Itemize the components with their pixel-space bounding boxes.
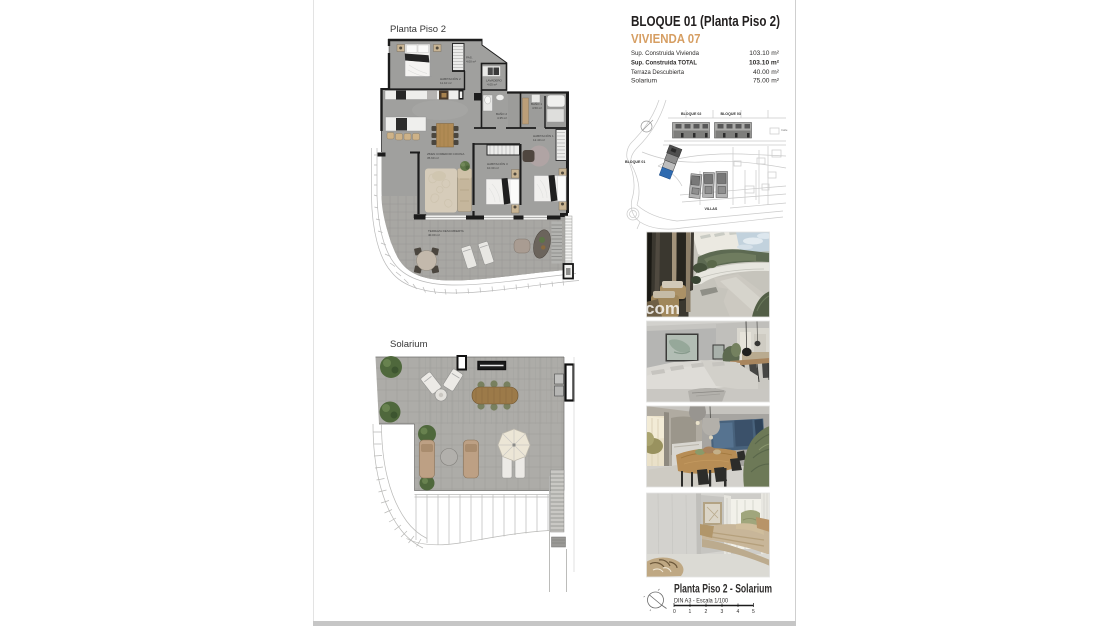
svg-text:10.30 m²: 10.30 m² <box>487 166 499 170</box>
svg-text:35.60 m²: 35.60 m² <box>427 156 439 160</box>
svg-text:40.00 m²: 40.00 m² <box>428 233 440 237</box>
svg-text:103.10 m²: 103.10 m² <box>749 60 780 67</box>
svg-text:5: 5 <box>752 609 755 615</box>
svg-text:DIN A3 - Escala 1/100: DIN A3 - Escala 1/100 <box>674 598 728 605</box>
svg-text:12.40 m²: 12.40 m² <box>533 138 545 142</box>
svg-text:4: 4 <box>737 609 740 615</box>
svg-text:Planta Piso 2 - Solarium: Planta Piso 2 - Solarium <box>674 584 772 596</box>
svg-text:VILLAS: VILLAS <box>705 207 718 211</box>
svg-text:BLOQUE 03: BLOQUE 03 <box>721 112 741 116</box>
svg-text:4.00 m²: 4.00 m² <box>466 60 476 64</box>
svg-text:com: com <box>645 299 680 318</box>
svg-text:4.50 m²: 4.50 m² <box>532 106 542 110</box>
svg-text:40.00 m²: 40.00 m² <box>753 69 780 76</box>
svg-text:Solarium: Solarium <box>390 339 428 350</box>
svg-text:BLOQUE 02: BLOQUE 02 <box>681 112 701 116</box>
svg-text:0: 0 <box>673 609 676 615</box>
svg-text:Solarium: Solarium <box>631 78 658 85</box>
svg-text:Sup. Construida Vivienda: Sup. Construida Vivienda <box>631 50 699 57</box>
svg-text:BLOQUE 01 (Planta Piso 2): BLOQUE 01 (Planta Piso 2) <box>631 14 780 30</box>
svg-text:Sup. Construida TOTAL: Sup. Construida TOTAL <box>631 60 697 67</box>
svg-text:103.10 m²: 103.10 m² <box>749 50 779 57</box>
svg-text:3: 3 <box>721 609 724 615</box>
svg-text:11.10 m²: 11.10 m² <box>440 81 452 85</box>
svg-text:75.00 m²: 75.00 m² <box>753 78 780 85</box>
svg-text:Planta Piso 2: Planta Piso 2 <box>390 24 446 35</box>
svg-text:Calle: Calle <box>781 128 788 132</box>
svg-text:BLOQUE 01: BLOQUE 01 <box>625 160 645 164</box>
svg-text:4.05 m²: 4.05 m² <box>487 83 497 87</box>
svg-text:2: 2 <box>705 609 708 615</box>
svg-text:1: 1 <box>689 609 692 615</box>
svg-text:VIVIENDA 07: VIVIENDA 07 <box>631 32 701 46</box>
svg-text:Terraza Descubierta: Terraza Descubierta <box>631 69 684 76</box>
svg-text:4.35 m²: 4.35 m² <box>497 116 507 120</box>
